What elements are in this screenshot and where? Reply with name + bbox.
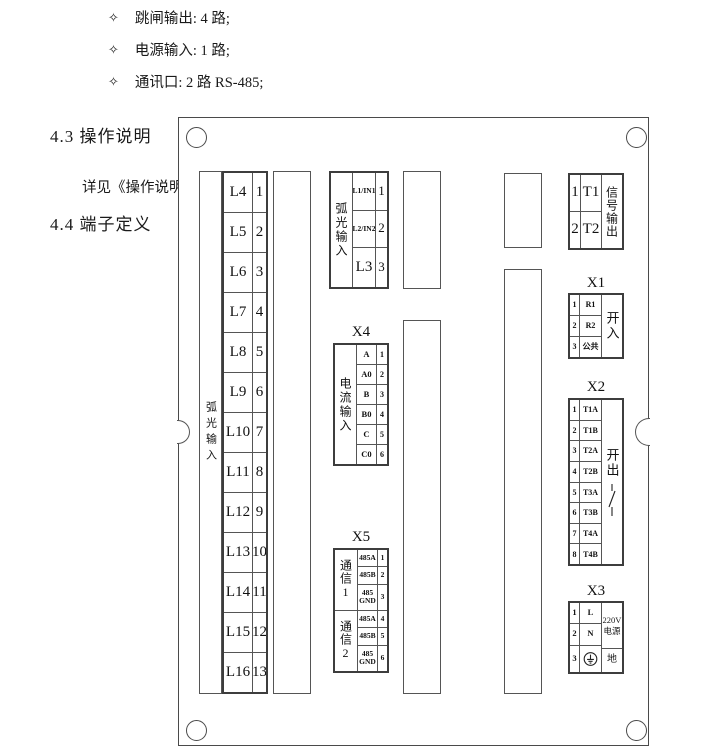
terminal-label: C [357, 425, 377, 445]
terminal-label: L15 [224, 613, 253, 653]
terminal-label: B0 [357, 405, 377, 425]
terminal-number: 2 [376, 211, 387, 249]
list-item: ✧ 跳闸输出: 4 路; [108, 7, 230, 28]
terminal-number: 1 [570, 400, 580, 421]
binary-output-label: 开出 [603, 448, 622, 478]
left-connector-strip: 弧光输入 [199, 171, 222, 694]
document-page: ✧ 跳闸输出: 4 路; ✧ 电源输入: 1 路; ✧ 通讯口: 2 路 RS-… [0, 0, 720, 756]
terminal-number: 2 [377, 365, 387, 385]
terminal-number: 8 [570, 544, 580, 564]
terminal-label: 485A [358, 550, 378, 567]
terminal-number: 13 [253, 653, 266, 692]
terminal-number: 1 [570, 175, 581, 212]
list-item-text: 电源输入: 1 路; [135, 39, 230, 60]
connector-strip [504, 173, 542, 248]
terminal-label: T1B [580, 421, 601, 442]
terminal-number: 5 [253, 333, 266, 373]
terminal-label: L9 [224, 373, 253, 413]
arc-input-strip-label: 弧光输入 [203, 401, 219, 465]
terminal-rows: 1T1A2T1B3T2A4T2B5T3A6T3B7T4A8T4B [570, 400, 601, 564]
terminal-number: 5 [378, 628, 387, 645]
current-input-label: 电流输入 [337, 377, 354, 433]
terminal-rows: 1L2N3 [570, 603, 601, 672]
terminal-label: T1 [581, 175, 601, 212]
binary-input-label: 开入 [603, 311, 622, 341]
terminal-number: 2 [570, 212, 581, 248]
four-pointed-star-icon: ✧ [108, 42, 119, 58]
terminal-label: L10 [224, 413, 253, 453]
terminal-number: 11 [253, 573, 266, 613]
terminal-number: 3 [570, 337, 580, 357]
terminal-number: 2 [570, 421, 580, 442]
terminal-rows: 485A1485B2485 GND3485A4485B5485 GND6 [357, 550, 387, 671]
block-title-x4: X4 [333, 324, 389, 341]
terminal-rows: 1R12R23公共 [570, 295, 601, 357]
signal-output-label: 信号输出 [604, 186, 621, 238]
comm-group-labels: 通信1 通信2 [335, 550, 357, 671]
terminal-label: L14 [224, 573, 253, 613]
terminal-label: L5 [224, 213, 253, 253]
terminal-number: 2 [570, 624, 580, 645]
terminal-label: L4 [224, 173, 253, 213]
four-pointed-star-icon: ✧ [108, 74, 119, 90]
terminal-label: 485B [358, 628, 378, 645]
terminal-label: L6 [224, 253, 253, 293]
power-220v-label: 220V 电源 [602, 603, 622, 649]
terminal-number: 1 [377, 345, 387, 365]
arc-input-block: 弧光输入 L1/IN11L2/IN22L33 [329, 171, 389, 289]
earth-ground-icon [580, 646, 601, 673]
terminal-label: L1/IN1 [353, 173, 376, 211]
terminal-label: L8 [224, 333, 253, 373]
earth-label: 地 [602, 649, 622, 672]
connector-strip [403, 320, 441, 694]
terminal-label: T2 [581, 212, 601, 248]
terminal-number: 1 [378, 550, 387, 567]
terminal-number: 4 [378, 611, 387, 628]
terminal-number: 4 [253, 293, 266, 333]
terminal-number: 3 [377, 385, 387, 405]
section-heading-4-3: 4.3 操作说明 [50, 122, 152, 147]
arc-input-label: 弧光输入 [333, 202, 350, 258]
terminal-number: 6 [253, 373, 266, 413]
terminal-label: 485 GND [358, 585, 378, 611]
section-heading-4-4: 4.4 端子定义 [50, 210, 152, 235]
list-item: ✧ 通讯口: 2 路 RS-485; [108, 71, 263, 92]
terminal-label: L2/IN2 [353, 211, 376, 249]
connector-strip [403, 171, 441, 289]
four-pointed-star-icon: ✧ [108, 10, 119, 26]
terminal-label: T3A [580, 483, 601, 504]
power-supply-block-x3: 1L2N3 220V 电源 地 [568, 601, 624, 674]
terminal-number: 1 [570, 295, 580, 316]
terminal-label: L16 [224, 653, 253, 692]
connector-strip [504, 269, 542, 694]
block-title-x1: X1 [568, 275, 624, 292]
terminal-label: T1A [580, 400, 601, 421]
list-item-text: 跳闸输出: 4 路; [135, 7, 230, 28]
terminal-number: 6 [570, 503, 580, 524]
terminal-number: 6 [377, 445, 387, 464]
terminal-label: L7 [224, 293, 253, 333]
terminal-label: 485B [358, 567, 378, 584]
terminal-number: 3 [253, 253, 266, 293]
terminal-label: 公共 [580, 337, 601, 357]
terminal-rows: L41L52L63L74L85L96L107L118L129L1310L1411… [224, 173, 266, 692]
terminal-number: 8 [253, 453, 266, 493]
terminal-label: T4B [580, 544, 601, 564]
block-title-x2: X2 [568, 379, 624, 396]
signal-output-block: 1T12T2 信号输出 [568, 173, 624, 250]
terminal-label: T4A [580, 524, 601, 545]
terminal-label: L11 [224, 453, 253, 493]
terminal-number: 3 [378, 585, 387, 611]
terminal-label: T2B [580, 462, 601, 483]
comm1-label: 通信1 [338, 559, 355, 600]
mounting-hole-icon [626, 720, 647, 741]
terminal-rows: 1T12T2 [570, 175, 601, 248]
block-title-x3: X3 [568, 583, 624, 600]
binary-input-block-x1: 1R12R23公共 开入 [568, 293, 624, 359]
terminal-number: 6 [378, 646, 387, 671]
terminal-number: 1 [570, 603, 580, 624]
list-item-text: 通讯口: 2 路 RS-485; [135, 71, 264, 92]
edge-notch [635, 418, 650, 446]
terminal-number: 5 [377, 425, 387, 445]
edge-notch [177, 420, 190, 444]
communication-block-x5: 通信1 通信2 485A1485B2485 GND3485A4485B5485 … [333, 548, 389, 673]
terminal-number: 4 [570, 462, 580, 483]
terminal-number: 2 [378, 567, 387, 584]
arc-terminal-block: L41L52L63L74L85L96L107L118L129L1310L1411… [222, 171, 268, 694]
terminal-label: A [357, 345, 377, 365]
terminal-number: 5 [570, 483, 580, 504]
power-side-labels: 220V 电源 地 [601, 603, 622, 672]
connector-strip [273, 171, 311, 694]
comm2-label: 通信2 [338, 620, 355, 661]
terminal-label: T3B [580, 503, 601, 524]
terminal-number: 7 [253, 413, 266, 453]
terminal-number: 7 [570, 524, 580, 545]
terminal-label: B [357, 385, 377, 405]
terminal-rows: L1/IN11L2/IN22L33 [352, 173, 387, 287]
terminal-number: 4 [377, 405, 387, 425]
terminal-number: 2 [253, 213, 266, 253]
terminal-number: 10 [253, 533, 266, 573]
block-title-x5: X5 [333, 529, 389, 546]
terminal-label: L12 [224, 493, 253, 533]
terminal-board-diagram: 弧光输入 L41L52L63L74L85L96L107L118L129L1310… [178, 117, 649, 746]
terminal-label: R2 [580, 316, 601, 337]
mounting-hole-icon [186, 720, 207, 741]
terminal-number: 1 [253, 173, 266, 213]
terminal-label: L3 [353, 248, 376, 287]
terminal-label: L [580, 603, 601, 624]
terminal-number: 2 [570, 316, 580, 337]
terminal-number: 3 [376, 248, 387, 287]
terminal-number: 3 [570, 441, 580, 462]
mounting-hole-icon [186, 127, 207, 148]
switch-contact-icon [605, 483, 619, 517]
terminal-label: C0 [357, 445, 377, 464]
terminal-label: L13 [224, 533, 253, 573]
current-input-block-x4: 电流输入 A1A02B3B04C5C06 [333, 343, 389, 466]
terminal-number: 1 [376, 173, 387, 211]
binary-output-block-x2: 1T1A2T1B3T2A4T2B5T3A6T3B7T4A8T4B 开出 [568, 398, 624, 566]
mounting-hole-icon [626, 127, 647, 148]
terminal-label: R1 [580, 295, 601, 316]
terminal-rows: A1A02B3B04C5C06 [356, 345, 387, 464]
terminal-number: 12 [253, 613, 266, 653]
terminal-number: 9 [253, 493, 266, 533]
terminal-label: T2A [580, 441, 601, 462]
terminal-label: 485A [358, 611, 378, 628]
list-item: ✧ 电源输入: 1 路; [108, 39, 230, 60]
terminal-number: 3 [570, 646, 580, 673]
terminal-label: A0 [357, 365, 377, 385]
terminal-label: 485 GND [358, 646, 378, 671]
terminal-label: N [580, 624, 601, 645]
